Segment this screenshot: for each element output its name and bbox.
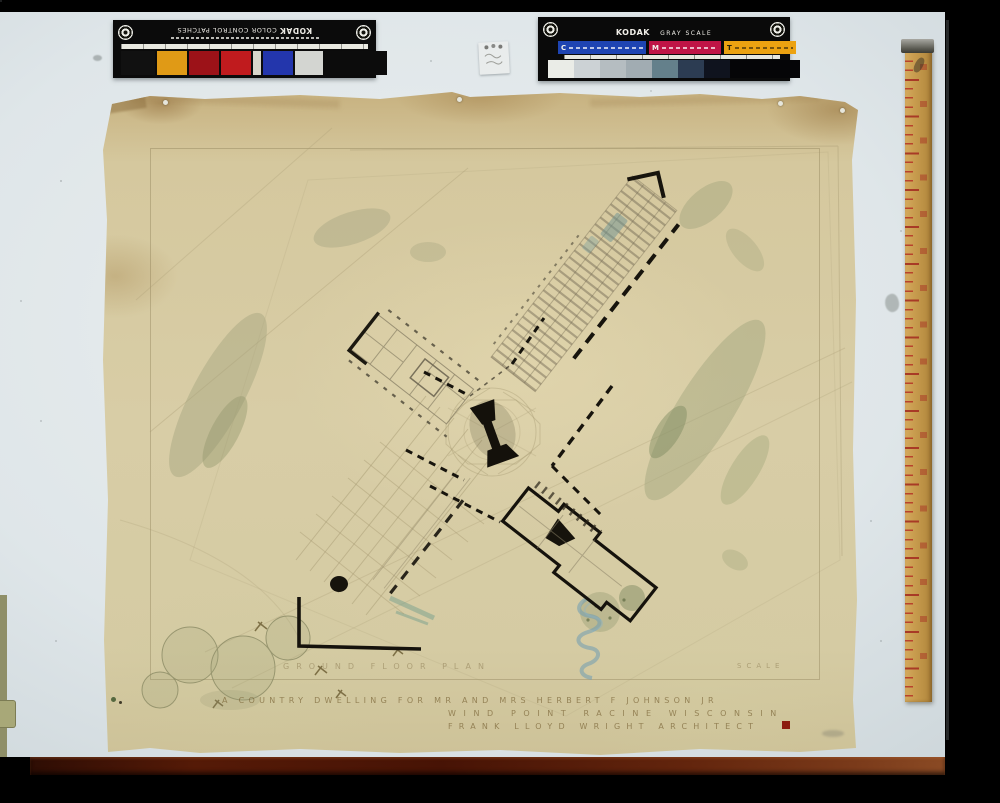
gray-step <box>626 60 652 78</box>
color-strip-label: COLOR CONTROL PATCHES <box>177 26 277 34</box>
color-strip-header: KODAK COLOR CONTROL PATCHES <box>113 20 376 44</box>
color-patch <box>189 51 219 75</box>
ruler-numerals <box>920 50 927 684</box>
plan-caption: GROUND FLOOR PLAN <box>283 662 491 671</box>
cmt-band-c: C <box>558 41 646 54</box>
gray-step <box>678 60 704 78</box>
dust-specks <box>0 0 2 2</box>
color-patch <box>157 51 187 75</box>
scale-caption: SCALE <box>737 662 784 670</box>
cmt-band-m: M <box>649 41 721 54</box>
green-mark <box>111 697 116 702</box>
wooden-yardstick <box>905 42 932 702</box>
catalog-tag <box>478 41 510 75</box>
color-patch <box>121 51 155 75</box>
color-patch <box>325 51 387 75</box>
registration-target-icon <box>356 25 371 40</box>
dark-mark <box>119 701 122 704</box>
gray-step-row <box>538 59 790 81</box>
table-edge <box>30 757 945 775</box>
kodak-color-control-strip: KODAK COLOR CONTROL PATCHES <box>113 20 376 78</box>
kodak-gray-scale-strip: KODAK GRAY SCALE CMT <box>538 17 790 81</box>
central-chimney <box>462 394 525 469</box>
backdrop-edge-highlight <box>946 20 949 740</box>
color-patch <box>263 51 293 75</box>
color-patch-row <box>113 49 376 78</box>
cmt-band-t: T <box>724 41 796 54</box>
kodak-brand: KODAK <box>279 26 312 35</box>
color-patch <box>295 51 323 75</box>
color-patch <box>221 51 251 75</box>
color-patch <box>253 51 261 75</box>
drawing-sheet: GROUND FLOOR PLAN SCALE A COUNTRY DWELLI… <box>100 90 860 755</box>
fireplace-mass <box>544 519 579 553</box>
gray-step <box>574 60 600 78</box>
gray-scale-label: GRAY SCALE <box>660 30 712 37</box>
red-signature-square <box>782 721 790 729</box>
registration-target-icon <box>543 22 558 37</box>
gray-step <box>548 60 574 78</box>
title-line-2: WIND POINT RACINE WISCONSIN <box>448 709 784 718</box>
vegetation <box>142 172 784 710</box>
archival-photo-page: { "calibration": { "color_patches": { "b… <box>0 0 1000 803</box>
ruler-major-ticks <box>905 42 919 702</box>
gray-step <box>704 60 730 78</box>
registration-target-icon <box>770 22 785 37</box>
title-line-1: A COUNTRY DWELLING FOR MR AND MRS HERBER… <box>222 696 718 705</box>
gray-scale-header: KODAK GRAY SCALE <box>538 17 790 41</box>
floor-plan-drawing <box>100 90 860 755</box>
teal-garden-strokes <box>390 598 434 624</box>
color-strip-inverted-text: KODAK COLOR CONTROL PATCHES <box>133 26 356 39</box>
pencil-smudge <box>822 730 844 737</box>
backdrop-smudge <box>93 55 102 61</box>
kodak-brand: KODAK <box>616 28 650 37</box>
heavy-wall-end <box>627 161 673 205</box>
tag-scribble <box>478 41 510 75</box>
teal-wash <box>600 212 628 243</box>
fine-print-line <box>170 37 320 39</box>
secondary-chimney <box>330 576 348 592</box>
cmt-band-row: CMT <box>538 41 790 54</box>
gray-step <box>600 60 626 78</box>
registration-target-icon <box>118 25 133 40</box>
gray-step <box>730 60 800 78</box>
edge-ruler-sliver <box>0 595 7 757</box>
gray-step <box>652 60 678 78</box>
edge-ruler-tab <box>0 700 16 728</box>
title-line-3: FRANK LLOYD WRIGHT ARCHITECT <box>448 722 759 731</box>
ruler-metal-end <box>901 39 934 53</box>
